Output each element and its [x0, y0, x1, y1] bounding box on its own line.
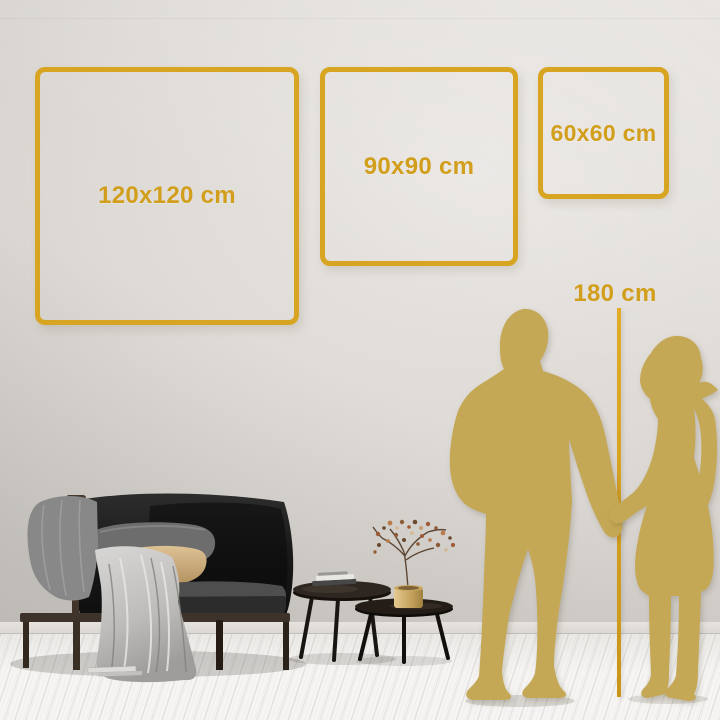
man-silhouette: [450, 309, 623, 700]
sofa-illustration: [8, 478, 310, 690]
coffee-tables-illustration: [278, 512, 474, 670]
size-label-60x60: 60x60 cm: [551, 120, 657, 147]
dried-branch: [373, 527, 446, 588]
product-size-guide-image: 120x120 cm 90x90 cm 60x60 cm 180 cm: [0, 0, 720, 720]
woman-silhouette: [610, 336, 718, 701]
size-label-90x90: 90x90 cm: [364, 153, 475, 181]
sofa-leg: [23, 616, 29, 668]
books-on-table: [312, 571, 357, 586]
size-square-120x120: 120x120 cm: [35, 67, 299, 325]
size-square-60x60: 60x60 cm: [538, 67, 669, 199]
size-label-120x120: 120x120 cm: [98, 182, 236, 210]
ceiling-line: [0, 18, 720, 19]
brass-vase-mouth: [398, 586, 419, 590]
large-table-sheen: [302, 585, 358, 593]
sofa-leg: [73, 620, 80, 670]
size-square-90x90: 90x90 cm: [320, 67, 518, 266]
branch-blossoms: [373, 520, 455, 554]
arm-throw-blanket: [27, 496, 98, 601]
sofa-leg: [216, 620, 223, 670]
